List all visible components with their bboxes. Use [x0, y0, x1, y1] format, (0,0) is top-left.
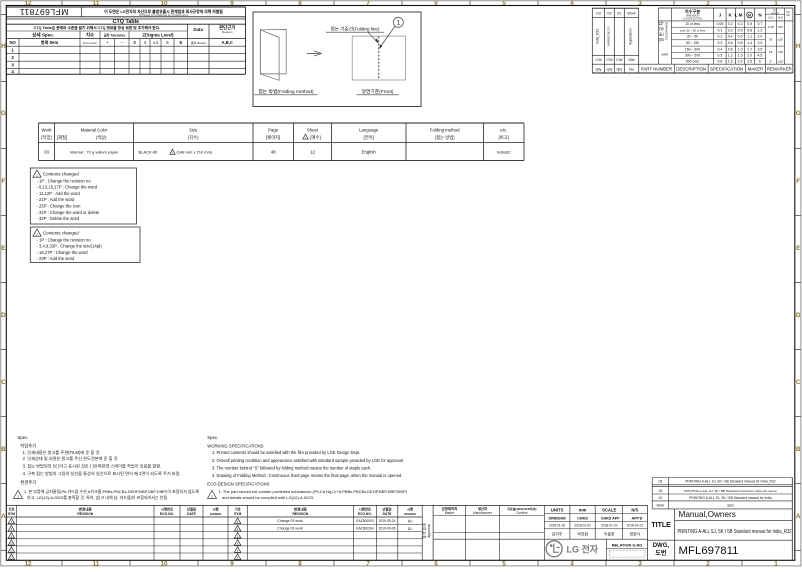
svg-text:etc.: etc. [500, 128, 507, 133]
svg-text:PRINTING A-ALL SJ, SK / BB Sta: PRINTING A-ALL SJ, SK / BB Standard manu… [689, 496, 772, 500]
svg-text:- 1P : Change the revision no: - 1P : Change the revision no [37, 178, 92, 183]
svg-text:Work: Work [627, 12, 636, 16]
svg-text:C: C [796, 379, 801, 386]
svg-text:김자주: 김자주 [552, 531, 563, 536]
svg-text:J: J [719, 13, 722, 18]
svg-text:작업추가: 작업추가 [20, 442, 36, 449]
svg-text:LG 전자: LG 전자 [567, 544, 599, 555]
svg-text:TOLERANCE: TOLERANCE [665, 22, 669, 40]
svg-text:Data: Data [193, 27, 203, 32]
svg-text:SYM: SYM [8, 512, 15, 516]
svg-text:6: 6 [434, 561, 438, 567]
svg-text:150 ~ 300: 150 ~ 300 [685, 47, 700, 51]
svg-text:2.0: 2.0 [738, 60, 743, 64]
svg-text:English: English [362, 150, 377, 155]
svg-text:IndiaS2: IndiaS2 [497, 150, 511, 155]
svg-text:30': 30' [769, 38, 773, 42]
svg-text:변경내용: 변경내용 [294, 507, 308, 512]
svg-text:RELATION G.NO: RELATION G.NO [612, 543, 643, 548]
svg-text:상세 Spec.: 상세 Spec. [32, 32, 54, 39]
svg-text:년월일: 년월일 [382, 507, 391, 512]
svg-text:A: A [796, 513, 801, 520]
svg-text:1: 1 [774, 561, 778, 567]
svg-text:12: 12 [24, 561, 32, 567]
svg-text:and details should be complied: and details should be complied with LG(1… [222, 495, 314, 500]
svg-text:CHKD: CHKD [577, 516, 588, 520]
svg-text:±15': ±15' [778, 50, 784, 54]
svg-text:각도: 각도 [773, 9, 778, 13]
svg-text:[페이지]: [페이지] [266, 134, 280, 141]
svg-text:도번: 도번 [655, 549, 666, 557]
svg-text:2.5: 2.5 [747, 60, 752, 64]
svg-text:0.2: 0.2 [728, 22, 733, 26]
svg-text:ANGLE: ANGLE [771, 12, 779, 15]
svg-text:0.7: 0.7 [757, 22, 762, 26]
svg-text:01: 01 [659, 496, 663, 500]
svg-text:±mm: ±mm [661, 53, 668, 57]
svg-text:B: B [1, 446, 6, 453]
svg-text:CW: CW [606, 58, 613, 62]
svg-text:7: 7 [366, 0, 370, 7]
svg-text:(색상): (색상) [96, 134, 107, 141]
svg-text:결과 Result: 결과 Result [191, 40, 206, 45]
svg-text:2018-01-02: 2018-01-02 [627, 524, 644, 528]
svg-text:- 21P : Add the word: - 21P : Add the word [37, 197, 76, 202]
svg-text:3pcs: 3pcs [727, 504, 734, 508]
svg-text:PRINTING A-ALL SJ, SK / SB Sta: PRINTING A-ALL SJ, SK / SB Standard manu… [685, 480, 776, 484]
svg-text:F: F [1, 178, 5, 185]
svg-text:Spec.: Spec. [207, 435, 218, 440]
svg-text:WORKING SPECIFICATIONS: WORKING SPECIFICATIONS [207, 443, 263, 448]
svg-text:1. 인쇄내용은 원고를 주관(FILM)에 준 할 것.: 1. 인쇄내용은 원고를 주관(FILM)에 준 할 것. [23, 449, 101, 456]
svg-text:Qty: Qty [596, 67, 602, 71]
svg-text:G: G [1, 110, 6, 117]
svg-text:EAZ900264: EAZ900264 [356, 527, 374, 531]
svg-text:- 1P : Change the revision no: - 1P : Change the revision no [37, 237, 92, 242]
svg-text:03: 03 [659, 480, 663, 484]
svg-text:기호: 기호 [235, 507, 241, 512]
svg-text:Reason: Reason [222, 30, 233, 34]
svg-text:B: B [796, 446, 801, 453]
svg-text:4. Drawing of Folding Method :: 4. Drawing of Folding Method : Continuou… [212, 473, 402, 478]
svg-text:PRINTING A-ALL SJ, SK / BB Sta: PRINTING A-ALL SJ, SK / BB Standard manu… [684, 489, 776, 493]
svg-text:[매수]: [매수] [310, 134, 320, 141]
svg-text:11: 11 [93, 0, 100, 7]
svg-text:시행번호: 시행번호 [359, 507, 371, 512]
svg-text:0.5: 0.5 [738, 28, 743, 32]
svg-text:협 력 업 체: 협 력 업 체 [422, 523, 427, 538]
svg-text:02: 02 [659, 489, 663, 493]
svg-text:0.05: 0.05 [716, 22, 723, 26]
svg-text:변경내용: 변경내용 [79, 507, 93, 512]
svg-text:4.5: 4.5 [153, 40, 159, 45]
svg-text:G: G [796, 110, 801, 117]
svg-text:over 10 ~ 30 or less: over 10 ~ 30 or less [680, 28, 706, 32]
svg-text:이종현: 이종현 [604, 531, 615, 536]
svg-text:[비고]: [비고] [499, 134, 509, 141]
svg-text:4.5: 4.5 [757, 54, 762, 58]
svg-text:9: 9 [230, 561, 234, 567]
svg-text:공차 Tolerance: 공차 Tolerance [104, 32, 126, 37]
svg-text:ECO-DESIGN SPECIFICATIONS: ECO-DESIGN SPECIFICATIONS [207, 481, 269, 486]
svg-text:DATE: DATE [383, 512, 393, 516]
svg-text:01: 01 [617, 11, 622, 16]
svg-text:REVISION: REVISION [292, 512, 308, 516]
svg-text:Work: Work [657, 504, 665, 508]
svg-text:UNITS: UNITS [551, 507, 564, 512]
svg-text:Internal : 70 g vellum paper: Internal : 70 g vellum paper [70, 150, 119, 155]
svg-text:1.2: 1.2 [757, 28, 762, 32]
svg-text:02: 02 [607, 11, 612, 16]
svg-text:환경추가: 환경추가 [20, 479, 36, 486]
svg-text:2.0: 2.0 [747, 54, 752, 58]
svg-text:Material Color: Material Color [81, 128, 108, 133]
svg-text:치수: 치수 [86, 31, 94, 38]
svg-text:50 ~ 150: 50 ~ 150 [686, 41, 699, 45]
svg-text:4. 구축 접는 방법의 그림의 실선을 통상의 실선으로: 4. 구축 접는 방법의 그림의 실선을 통상의 실선으로 표시된 면이 제 1… [23, 470, 181, 477]
svg-text:8: 8 [298, 0, 302, 7]
svg-text:0.6: 0.6 [728, 41, 733, 45]
svg-text:APP'D: APP'D [631, 516, 642, 520]
svg-text:[작업]: [작업] [41, 134, 51, 141]
svg-text:48: 48 [271, 150, 276, 155]
svg-text:기호: 기호 [8, 507, 14, 512]
svg-text:EAZ900003: EAZ900003 [356, 519, 374, 523]
svg-text:0.3: 0.3 [738, 22, 743, 26]
svg-text:SPECIFICATION: SPECIFICATION [710, 67, 743, 72]
svg-text:7: 7 [366, 561, 370, 567]
svg-text:접는 기준선(Folding line): 접는 기준선(Folding line) [331, 26, 380, 33]
svg-text:PART NUMBER: PART NUMBER [641, 67, 672, 72]
svg-text:(접는 방법): (접는 방법) [435, 134, 455, 140]
svg-text:M: M [748, 13, 751, 17]
svg-text:4: 4 [570, 561, 574, 567]
svg-text:1.2: 1.2 [728, 54, 733, 58]
svg-text:1. 본 부품에 금지물질(Pb,카드뮴,수은,6가크롬,P: 1. 본 부품에 금지물질(Pb,카드뮴,수은,6가크롬,PBBs,PBCBs,… [24, 488, 199, 494]
svg-text:−: − [120, 40, 123, 45]
svg-text:MAKER: MAKER [748, 67, 764, 72]
svg-text:2018-01-02: 2018-01-02 [574, 524, 591, 528]
svg-text:DESCRIPTION: DESCRIPTION [676, 67, 706, 72]
svg-text:8: 8 [298, 561, 302, 567]
svg-text:SIGNED: SIGNED [404, 512, 416, 516]
svg-text:시행번호: 시행번호 [161, 507, 173, 512]
svg-text:박희원: 박희원 [577, 531, 588, 536]
svg-text:- 23P : Add the word: - 23P : Add the word [37, 256, 76, 261]
svg-text:- 32P : Delete the word: - 32P : Delete the word [37, 216, 80, 221]
svg-text:2. 인쇄상태 및 외관은 원고를 주신 한도견본에 준 할: 2. 인쇄상태 및 외관은 원고를 주신 한도견본에 준 할 것. [23, 455, 119, 462]
svg-text:03: 03 [44, 150, 49, 155]
svg-text:N/S: N/S [631, 507, 638, 512]
svg-text:3: 3 [638, 0, 642, 7]
svg-text:9: 9 [230, 0, 234, 7]
svg-text:1°30': 1°30' [768, 25, 775, 29]
svg-text:A: A [1, 513, 6, 520]
svg-text:DATE: DATE [187, 512, 197, 516]
svg-text:0.8: 0.8 [728, 47, 733, 51]
svg-text:1: 1 [211, 495, 213, 499]
svg-text:Change 03 work: Change 03 work [277, 527, 303, 531]
svg-text:MFL697811: MFL697811 [679, 545, 739, 557]
svg-text:2.0: 2.0 [757, 35, 762, 39]
svg-text:Dimension: Dimension [83, 41, 98, 45]
svg-text:SCALE: SCALE [602, 507, 616, 512]
svg-text:Privileged & Confidential by L: Privileged & Confidential by LG Electron… [139, 13, 189, 17]
svg-text:H: H [1, 43, 6, 50]
svg-text:시행: 시행 [212, 507, 218, 512]
svg-text:Spec.: Spec. [18, 435, 29, 440]
svg-text:Folding method: Folding method [430, 128, 460, 133]
svg-text:Manual,Owners: Manual,Owners [679, 510, 736, 519]
svg-text:- 25P : Change the icon: - 25P : Change the icon [37, 204, 82, 209]
svg-text:1.7: 1.7 [747, 47, 752, 51]
svg-text:Maker: Maker [445, 511, 455, 515]
svg-text:0.3: 0.3 [717, 41, 722, 45]
svg-text:CTQ Table: CTQ Table [113, 19, 140, 25]
svg-text:10: 10 [160, 561, 168, 567]
svg-text:500 over: 500 over [686, 60, 700, 64]
svg-text:SYM: SYM [234, 512, 241, 516]
svg-text:12: 12 [24, 0, 32, 7]
svg-text:300 ~ 500: 300 ~ 500 [685, 54, 700, 58]
svg-text:E: E [1, 245, 6, 252]
svg-text:CLASSIFICATION: CLASSIFICATION [683, 17, 703, 20]
svg-text:정원식: 정원식 [630, 531, 640, 536]
svg-text:- 3,4,9,33P : Change the size(: - 3,4,9,33P : Change the size(14pt) [37, 244, 103, 249]
svg-text:E: E [796, 245, 801, 252]
svg-text:M: M [739, 13, 743, 18]
svg-text:±10': ±10' [778, 60, 784, 64]
svg-text:DWG,: DWG, [653, 543, 670, 549]
svg-text:Contents changed: Contents changed [43, 230, 79, 235]
svg-text:DRW/DSN: DRW/DSN [549, 516, 567, 520]
svg-text:2. Overall printing condition: 2. Overall printing condition and appear… [212, 458, 404, 463]
svg-text:BLACK A5: BLACK A5 [139, 150, 159, 155]
svg-text:시행: 시행 [407, 507, 413, 512]
svg-text:Page: Page [268, 128, 279, 133]
svg-text:2: 2 [706, 561, 710, 567]
svg-text:[언어]: [언어] [364, 134, 374, 141]
svg-text:11: 11 [93, 561, 100, 567]
svg-text:SIGNED: SIGNED [210, 512, 222, 516]
svg-text:2019-09-06: 2019-09-06 [379, 527, 396, 531]
svg-text:- 18,27P : Change the word: - 18,27P : Change the word [37, 250, 89, 255]
svg-text:5: 5 [502, 561, 506, 567]
svg-text:0.4: 0.4 [728, 35, 733, 39]
svg-text:0.3: 0.3 [728, 28, 733, 32]
svg-text:3. 접는 방법뒤의 S( )라고 표시된 것은 ( )안쪽: 3. 접는 방법뒤의 S( )라고 표시된 것은 ( )안쪽판경 스테이플 작업… [23, 463, 162, 470]
svg-text:[재질]: [재질] [57, 134, 67, 141]
svg-text:이 도면은 LG전자의 자산으로 불법유출시 관계법과 회사: 이 도면은 LG전자의 자산으로 불법유출시 관계법과 회사규정에 의해 처벌됨 [104, 9, 223, 14]
svg-text:S4W8112&1Y1: S4W8112&1Y1 [607, 26, 611, 47]
svg-text:Qty: Qty [607, 67, 613, 71]
svg-text:Manufacturer: Manufacturer [473, 511, 493, 515]
svg-text:.: . [616, 36, 620, 37]
svg-text:3.5: 3.5 [757, 47, 762, 51]
svg-text:2018-01-02: 2018-01-02 [601, 524, 618, 528]
svg-text:H: H [796, 43, 801, 50]
svg-text:1.4: 1.4 [747, 41, 752, 45]
svg-text:NO: NO [9, 40, 16, 45]
svg-text:REMARKER: REMARKER [767, 67, 792, 72]
svg-text:(치수): (치수) [188, 134, 199, 141]
svg-text:0.8: 0.8 [747, 28, 752, 32]
svg-text:D: D [796, 312, 801, 319]
svg-text:3. The number behind "S" follo: 3. The number behind "S" followed by fol… [212, 465, 371, 470]
svg-text:0.5: 0.5 [747, 22, 752, 26]
svg-text:1.5: 1.5 [738, 54, 743, 58]
svg-text:4: 4 [570, 0, 574, 7]
svg-text:0.5: 0.5 [717, 54, 722, 58]
svg-text:ECO.NO.: ECO.NO. [358, 512, 372, 516]
svg-text:정면기준(Front): 정면기준(Front) [361, 88, 393, 95]
svg-text:1.1: 1.1 [747, 35, 752, 39]
svg-text:5°: 5° [770, 60, 773, 64]
svg-text:6: 6 [759, 60, 761, 64]
svg-text:M.N: M.N [778, 17, 783, 20]
svg-text:A,B,C: A,B,C [221, 40, 232, 45]
svg-text:12: 12 [310, 150, 315, 155]
svg-text:- 8,13,15,17P : Change the wor: - 8,13,15,17P : Change the word [37, 185, 98, 190]
svg-text:1: 1 [397, 19, 401, 26]
svg-text:2.5: 2.5 [757, 41, 762, 45]
svg-text:심(): 심() [408, 518, 413, 523]
svg-text:항목 Item: 항목 Item [41, 39, 59, 46]
svg-text:1.6: 1.6 [728, 60, 733, 64]
svg-text:L: L [734, 13, 737, 18]
svg-text:CW: CW [595, 58, 602, 62]
svg-text:MFL697811: MFL697811 [19, 7, 68, 17]
svg-text:2: 2 [706, 0, 710, 7]
svg-text:- 31P : Change the word or del: - 31P : Change the word or delete [37, 210, 100, 215]
svg-text:mm: mm [579, 507, 587, 512]
svg-text:- 11,12P : Add the word: - 11,12P : Add the word [37, 191, 81, 196]
svg-text:6: 6 [434, 0, 438, 7]
svg-text:접는 방법(Folding method): 접는 방법(Folding method) [258, 88, 314, 95]
svg-text:1: 1 [17, 495, 19, 499]
svg-text:Z(Sigma Level): Z(Sigma Level) [142, 33, 174, 38]
svg-text:등급: 등급 [786, 11, 790, 17]
svg-text:03: 03 [596, 11, 601, 16]
svg-text:1.0: 1.0 [738, 47, 743, 51]
svg-text:Confirm: Confirm [516, 511, 528, 515]
svg-text:30 ~ 50: 30 ~ 50 [687, 35, 699, 39]
svg-text:2018-01-02: 2018-01-02 [549, 524, 566, 528]
svg-text:CW: CW [616, 58, 623, 62]
svg-text:15': 15' [769, 50, 773, 54]
svg-text:하고, LG(10)-A-9023를 충족할 것. 특히,: 하고, LG(10)-A-9023를 충족할 것. 특히, [잉크 내에 납, … [27, 494, 168, 500]
svg-text:F: F [796, 178, 800, 185]
svg-text:0.1: 0.1 [717, 28, 722, 32]
svg-text:0.8: 0.8 [717, 60, 722, 64]
svg-text:0.8: 0.8 [738, 41, 743, 45]
svg-text:3: 3 [638, 561, 642, 567]
svg-text:(148 mm x 210 mm): (148 mm x 210 mm) [177, 150, 213, 155]
svg-text:0.2: 0.2 [717, 35, 722, 39]
svg-text:D: D [1, 312, 6, 319]
svg-text:C: C [1, 379, 6, 386]
svg-text:Language: Language [359, 128, 379, 133]
svg-text:TITLE: TITLE [651, 522, 671, 529]
svg-text:No: No [629, 67, 634, 71]
svg-text:Application: Application [629, 28, 633, 45]
svg-text:J.K.L: J.K.L [768, 17, 774, 20]
svg-text:Size: Size [189, 128, 198, 133]
svg-text:±20': ±20' [778, 38, 784, 42]
svg-text:CTQ Table은 문제의 수준을 알기 위해서 CTQ: CTQ Table은 문제의 수준을 알기 위해서 CTQ 정보를 항상 보관 … [34, 25, 160, 30]
svg-text:년월일: 년월일 [187, 507, 196, 512]
svg-text:Qty: Qty [616, 67, 622, 71]
svg-text:±30': ±30' [778, 25, 784, 29]
svg-text:REVISION: REVISION [77, 512, 93, 516]
svg-text:5: 5 [502, 0, 506, 7]
svg-text:Change 03 work: Change 03 work [277, 519, 303, 523]
svg-text:1. Printed contents should be: 1. Printed contents should be satisfied … [212, 450, 360, 455]
svg-text:ECO.NO.: ECO.NO. [160, 512, 174, 516]
svg-text:0.6: 0.6 [738, 35, 743, 39]
svg-text:심(): 심() [408, 526, 413, 531]
svg-text:10 or less: 10 or less [685, 22, 700, 26]
svg-text:Approval: Approval [427, 524, 431, 538]
svg-text:Site: Site [628, 58, 634, 62]
svg-text:India_R32: India_R32 [596, 29, 600, 45]
svg-text:CHKD APP: CHKD APP [601, 516, 620, 520]
svg-text:PRINTING A-ALL SJ, SK I SB Sta: PRINTING A-ALL SJ, SK I SB Standard manu… [678, 529, 792, 535]
svg-text:1. The part should not contain: 1. The part should not contain prohibite… [219, 489, 408, 494]
svg-text:+: + [106, 40, 109, 45]
svg-text:2019-05-24: 2019-05-24 [379, 519, 396, 523]
svg-text:0.4: 0.4 [717, 47, 722, 51]
svg-text:Sheet: Sheet [307, 128, 319, 133]
svg-text:1: 1 [774, 0, 778, 7]
svg-text:10: 10 [160, 0, 168, 7]
svg-text:Work: Work [42, 128, 53, 133]
svg-text:Contents changed: Contents changed [43, 171, 79, 176]
